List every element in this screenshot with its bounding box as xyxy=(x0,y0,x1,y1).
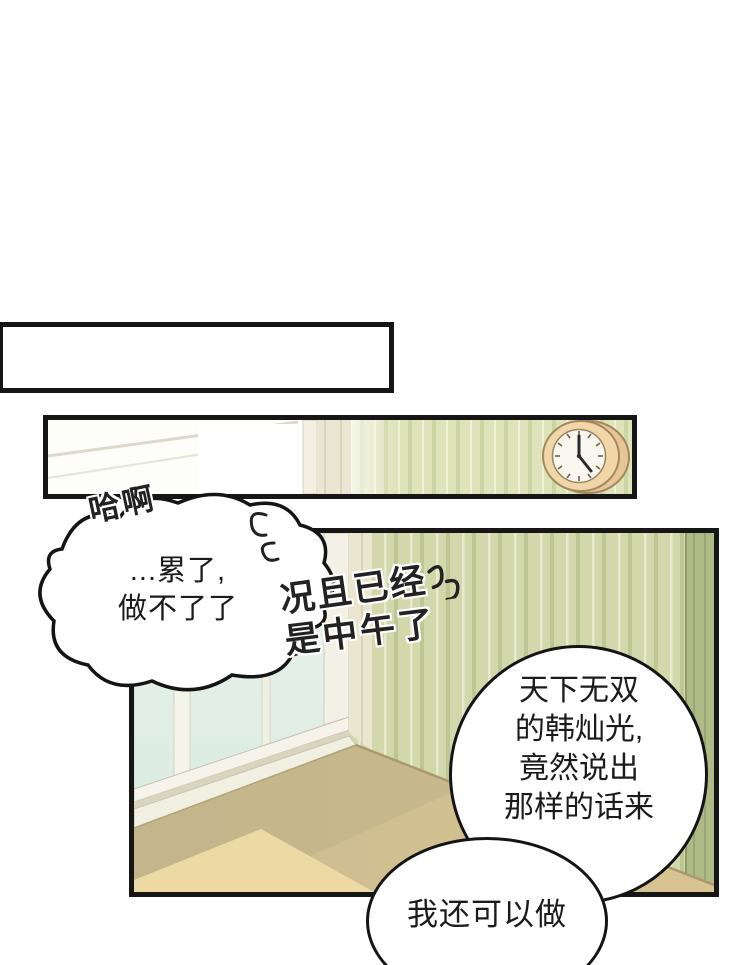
wall-light-fade xyxy=(351,420,397,494)
bottom-bubble-text: 我还可以做 xyxy=(378,889,596,934)
speech-line: 天下无双 xyxy=(458,671,700,710)
wall-clock xyxy=(543,421,629,493)
speech-line: 竟然说出 xyxy=(458,749,700,788)
speech-line: 的韩灿光, xyxy=(458,710,700,749)
speech-line: 那样的话来 xyxy=(458,788,700,827)
fluster-marks-icon xyxy=(417,551,467,603)
speech-line: 做不了了 xyxy=(94,590,262,628)
round-bubble-text: 天下无双 的韩灿光, 竟然说出 那样的话来 xyxy=(458,671,700,827)
speech-line: 我还可以做 xyxy=(378,889,596,934)
cloud-bubble-text: ...累了, 做不了了 xyxy=(94,552,262,628)
comic-page: 哈啊 ...累了, 做不了了 况且已经 是中午了 天下无双 的韩灿光, 竟然说出… xyxy=(0,0,740,965)
speech-line: ...累了, xyxy=(94,552,262,590)
panel-empty xyxy=(0,322,394,393)
